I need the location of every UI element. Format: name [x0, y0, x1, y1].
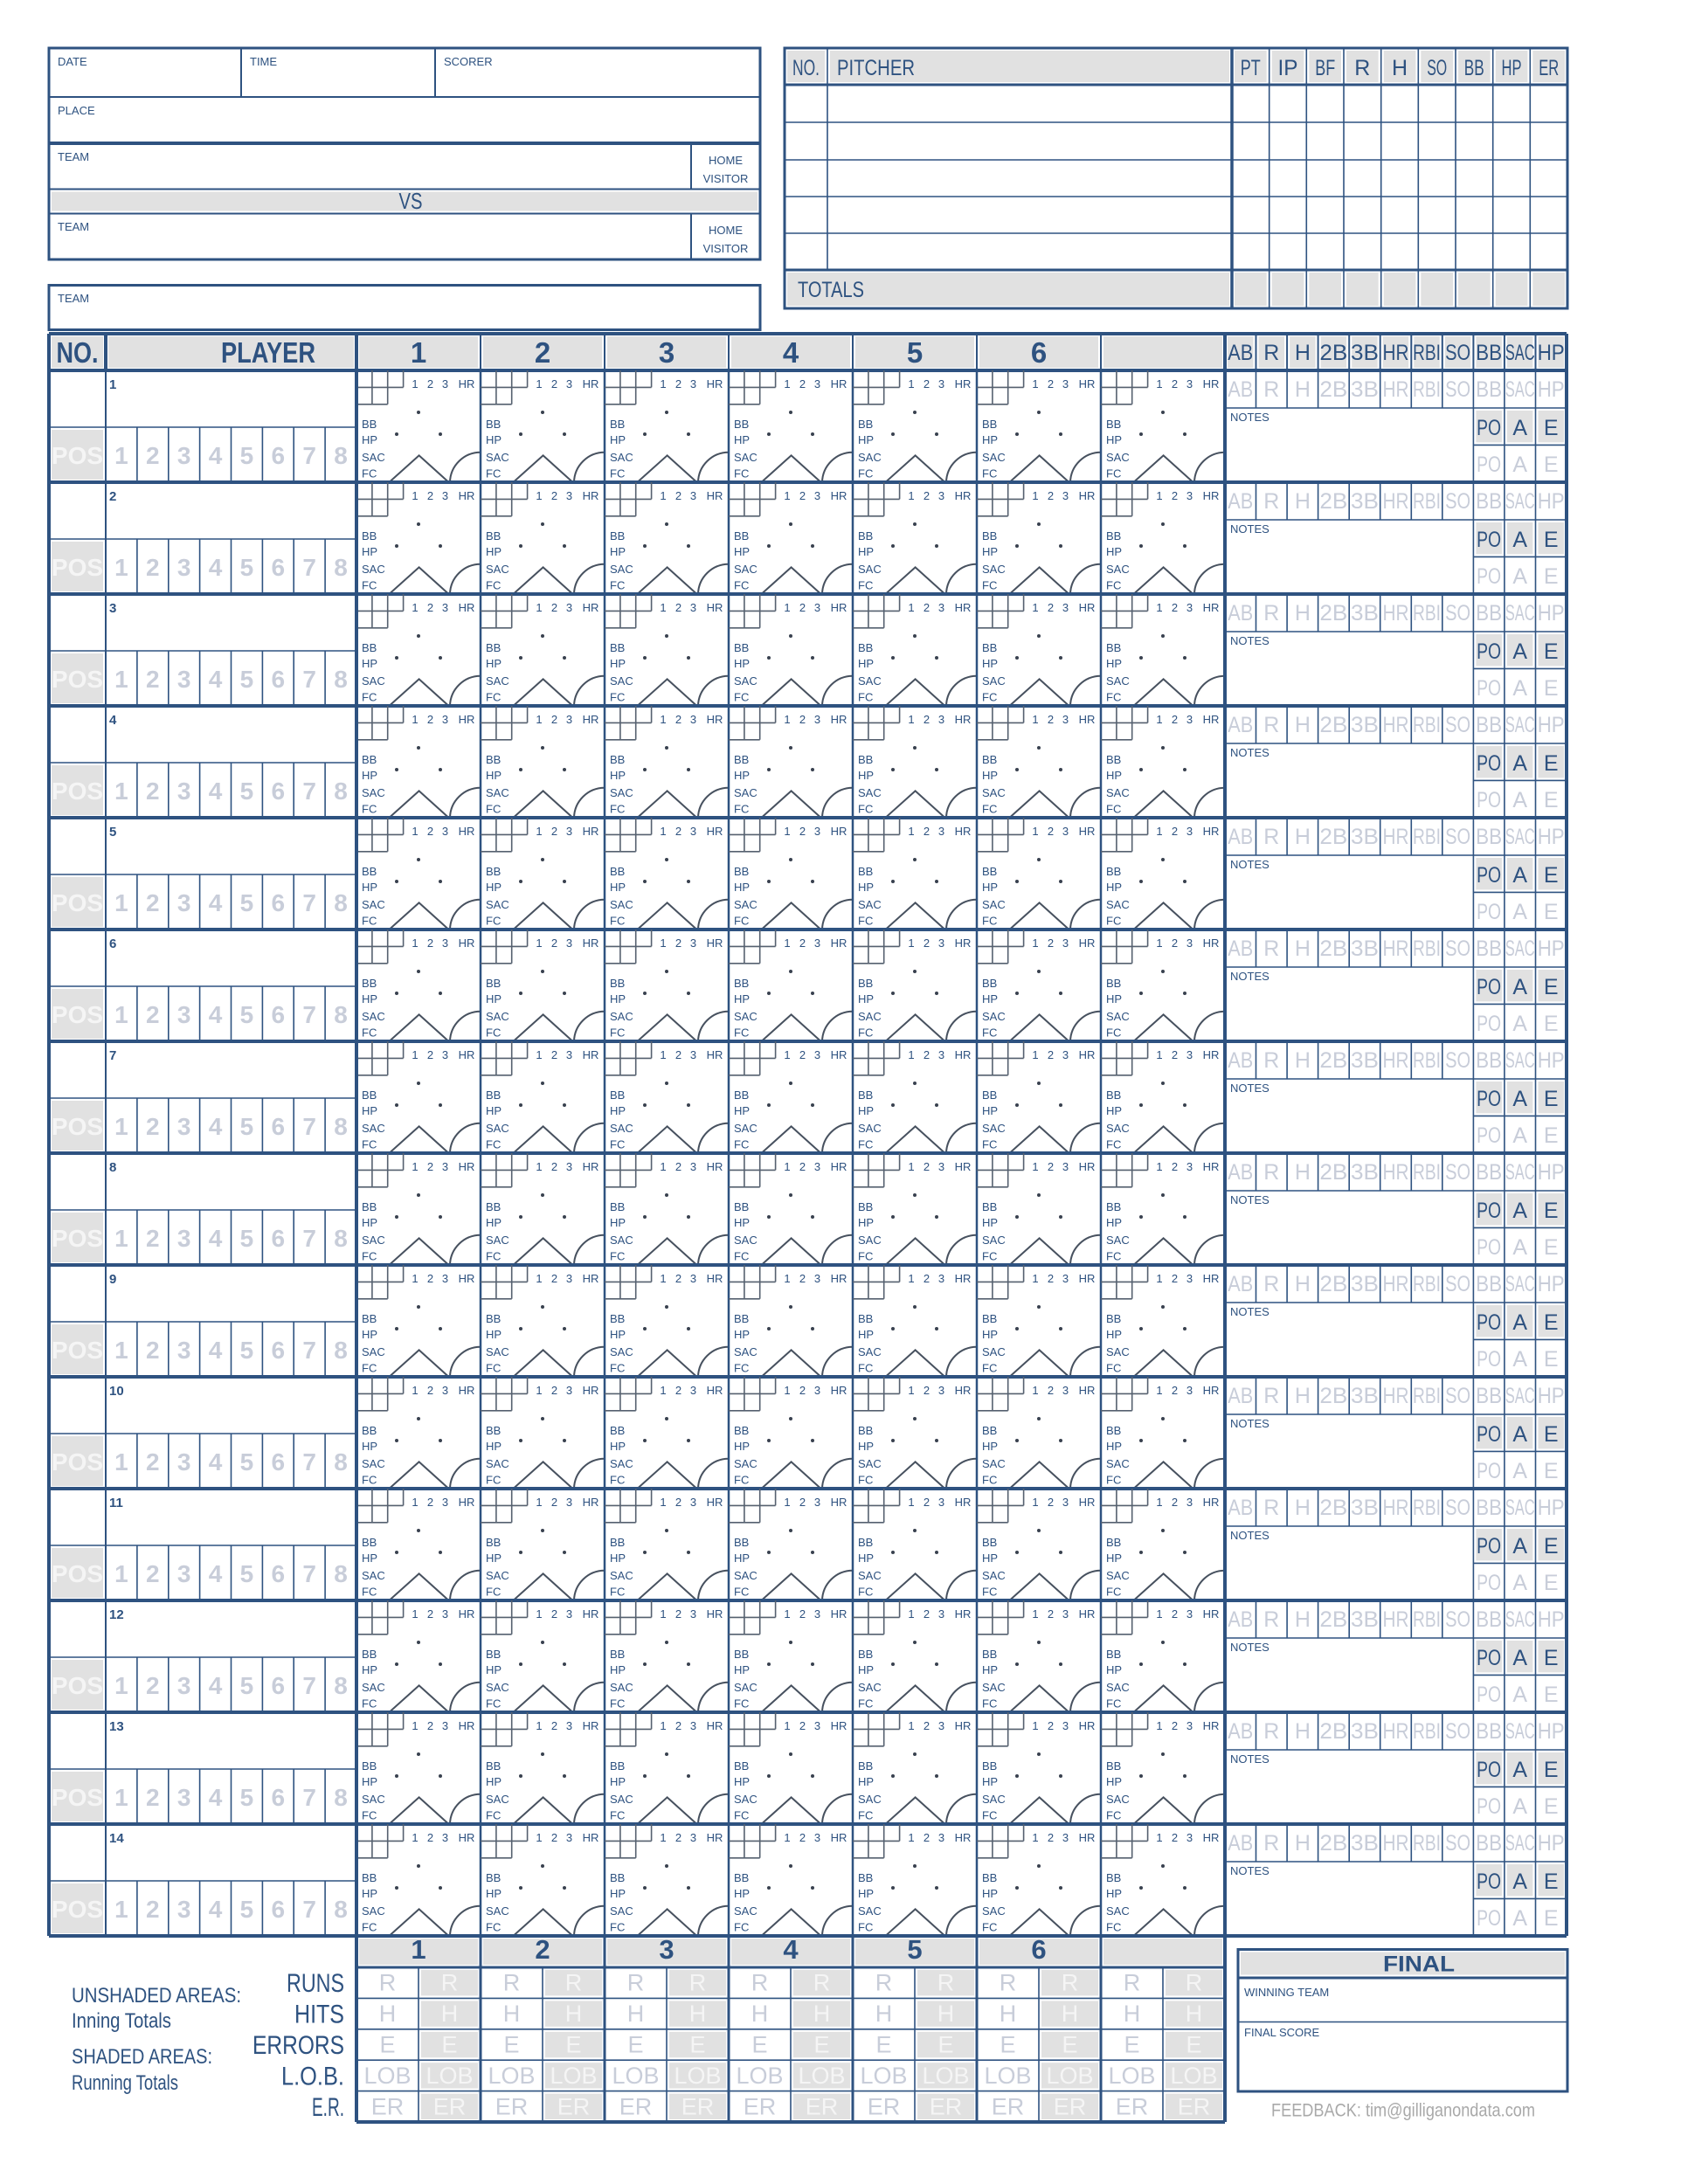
svg-text:DATE: DATE [58, 55, 87, 68]
svg-text:HOME: HOME [709, 224, 743, 237]
svg-text:5: 5 [907, 1934, 922, 1965]
svg-text:14: 14 [109, 1831, 124, 1846]
svg-text:1: 1 [411, 336, 426, 369]
svg-text:HITS: HITS [294, 2001, 344, 2029]
svg-text:HOME: HOME [709, 154, 743, 167]
svg-text:PTIPBFRHSOBBHPER: PTIPBFRHSOBBHPER [1241, 56, 1559, 80]
svg-text:VS: VS [399, 188, 423, 214]
svg-text:FINAL SCORE: FINAL SCORE [1244, 2026, 1320, 2039]
svg-text:1: 1 [109, 377, 116, 392]
svg-text:4: 4 [783, 1934, 799, 1965]
svg-text:13: 13 [109, 1719, 124, 1734]
svg-text:2: 2 [535, 1934, 550, 1965]
svg-text:TEAM: TEAM [58, 150, 89, 163]
svg-text:E.R.: E.R. [312, 2093, 344, 2122]
svg-text:2: 2 [109, 489, 116, 504]
svg-text:SCORER: SCORER [444, 55, 493, 68]
svg-text:10: 10 [109, 1384, 124, 1399]
svg-text:ERRORS: ERRORS [253, 2031, 344, 2060]
svg-text:NO.: NO. [57, 336, 99, 369]
svg-text:L.O.B.: L.O.B. [281, 2062, 344, 2091]
svg-text:3: 3 [659, 1934, 674, 1965]
svg-text:9: 9 [109, 1272, 116, 1287]
svg-text:UNSHADED AREAS:: UNSHADED AREAS: [72, 1984, 241, 2008]
svg-text:PITCHER: PITCHER [837, 56, 915, 80]
svg-text:FEEDBACK: tim@gilliganondata.c: FEEDBACK: tim@gilliganondata.com [1271, 2101, 1535, 2121]
svg-text:3: 3 [109, 601, 116, 616]
svg-text:ABRH2B3BHRRBISOBBSACHP: ABRH2B3BHRRBISOBBSACHP [1228, 341, 1564, 365]
svg-text:TEAM: TEAM [58, 220, 89, 233]
svg-text:4: 4 [783, 336, 799, 369]
svg-text:FINAL: FINAL [1383, 1952, 1455, 1977]
svg-text:RUNS: RUNS [287, 1969, 344, 1998]
svg-text:8: 8 [109, 1160, 116, 1175]
svg-text:11: 11 [109, 1496, 123, 1510]
svg-text:6: 6 [1031, 1934, 1046, 1965]
svg-text:3: 3 [659, 336, 675, 369]
svg-text:PLACE: PLACE [58, 104, 95, 117]
svg-text:5: 5 [907, 336, 923, 369]
svg-text:6: 6 [109, 936, 116, 951]
svg-text:12: 12 [109, 1607, 124, 1622]
svg-text:SHADED AREAS:: SHADED AREAS: [72, 2045, 212, 2069]
svg-text:4: 4 [109, 713, 117, 728]
svg-text:TEAM: TEAM [58, 292, 89, 305]
svg-text:VISITOR: VISITOR [703, 172, 749, 185]
svg-text:PLAYER: PLAYER [221, 336, 315, 369]
svg-text:TOTALS: TOTALS [798, 278, 864, 302]
svg-text:WINNING TEAM: WINNING TEAM [1244, 1986, 1329, 1999]
svg-text:NO.: NO. [792, 56, 820, 80]
svg-text:TIME: TIME [250, 55, 277, 68]
svg-text:7: 7 [109, 1048, 116, 1063]
svg-text:2: 2 [535, 336, 550, 369]
svg-text:Inning Totals: Inning Totals [72, 2009, 171, 2033]
svg-text:Running Totals: Running Totals [72, 2071, 178, 2095]
svg-text:5: 5 [109, 825, 116, 840]
svg-text:6: 6 [1031, 336, 1047, 369]
svg-text:1: 1 [411, 1934, 425, 1965]
svg-text:VISITOR: VISITOR [703, 242, 749, 255]
